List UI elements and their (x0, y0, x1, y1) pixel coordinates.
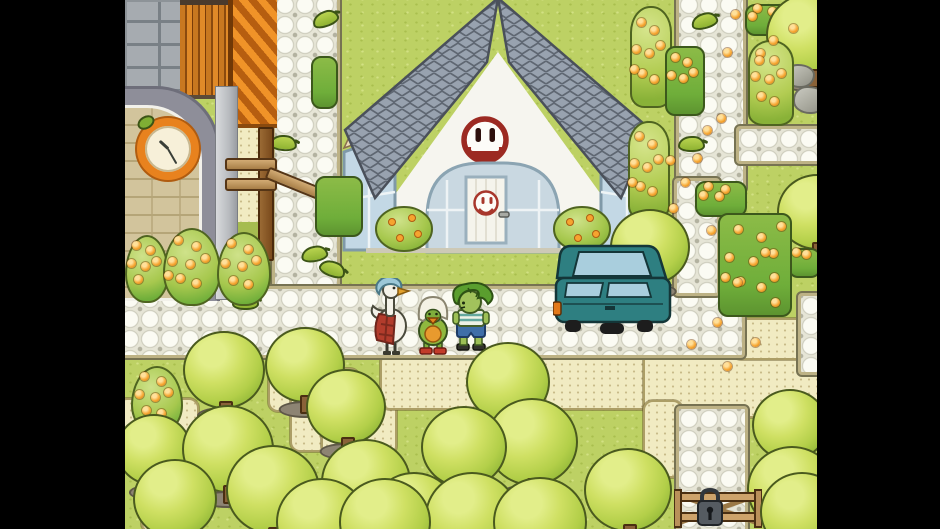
wooden-gate[interactable] (674, 486, 762, 529)
tree (133, 459, 217, 529)
flower (638, 69, 647, 78)
car[interactable] (553, 238, 675, 334)
flower (648, 187, 657, 196)
flower (789, 24, 798, 33)
car-side-window-left (565, 283, 603, 297)
flower (252, 256, 261, 265)
flower (703, 126, 712, 135)
flower (628, 178, 637, 187)
flower (765, 75, 774, 84)
flower (650, 75, 659, 84)
flower (132, 241, 141, 250)
flower (151, 393, 160, 402)
letterbox-right (817, 0, 940, 529)
smiley-emblem (464, 119, 506, 161)
flower (632, 45, 641, 54)
letterbox-left (0, 0, 125, 529)
flower (717, 114, 726, 123)
flower (751, 338, 760, 347)
flower (770, 56, 779, 65)
chick-chest (425, 326, 441, 342)
flower (755, 56, 764, 65)
flower (757, 92, 766, 101)
flower (725, 253, 734, 262)
flower (713, 318, 722, 327)
foundation-bush-left (376, 207, 432, 251)
flower (648, 140, 657, 149)
flower (681, 178, 690, 187)
chick-villager[interactable] (412, 291, 454, 357)
chick-shoe (420, 348, 432, 354)
flower (654, 155, 663, 164)
hedge (311, 56, 338, 109)
cobblestone-branch-path (736, 126, 817, 164)
rock (793, 86, 817, 114)
flower (733, 278, 742, 287)
flower (777, 69, 786, 78)
flower (221, 259, 230, 268)
flower (671, 53, 680, 62)
front-door[interactable] (466, 177, 509, 243)
car-rear-window (573, 252, 651, 276)
flower (637, 18, 646, 27)
flower (636, 182, 645, 191)
flower (140, 372, 149, 381)
flower (704, 182, 713, 191)
flower (757, 283, 766, 292)
flower (689, 68, 698, 77)
goose-beak (398, 288, 409, 295)
flower (201, 254, 210, 263)
flower (666, 156, 675, 165)
flower (693, 154, 702, 163)
flower (146, 246, 155, 255)
flower (777, 222, 786, 231)
flower (244, 280, 253, 289)
flower (164, 271, 173, 280)
flower (244, 245, 253, 254)
flower (723, 48, 732, 57)
flower (157, 377, 166, 386)
flower (141, 262, 150, 271)
flower (174, 236, 183, 245)
tree (306, 369, 386, 445)
flower (687, 340, 696, 349)
flower (707, 226, 716, 235)
flower (699, 191, 708, 200)
flower (669, 204, 678, 213)
flower (192, 242, 201, 251)
door-smiley-icon (475, 192, 498, 215)
flower (152, 257, 161, 266)
flower (127, 259, 136, 268)
car-wheel (565, 320, 581, 332)
flower (769, 36, 778, 45)
flower (135, 390, 144, 399)
flower (769, 249, 778, 258)
flower (751, 72, 760, 81)
flower (192, 279, 201, 288)
flower (683, 58, 692, 67)
flower (630, 65, 639, 74)
flower (723, 362, 732, 371)
flower (229, 276, 238, 285)
tree (183, 331, 265, 409)
leaf-haired-boy[interactable] (448, 282, 494, 354)
game-screen (0, 0, 940, 529)
flower (731, 10, 740, 19)
chick-shoe (434, 348, 446, 354)
flower (238, 262, 247, 271)
flower (679, 74, 688, 83)
wall-clock (137, 118, 199, 180)
flower (176, 274, 185, 283)
flower (734, 225, 743, 234)
house (338, 0, 658, 260)
door-handle (499, 212, 509, 217)
flower (792, 248, 801, 257)
flower (749, 257, 758, 266)
flower (802, 250, 811, 259)
car-wheel (600, 323, 624, 334)
car-side-window-right (607, 283, 651, 297)
flower (186, 260, 195, 269)
hedge (315, 176, 363, 237)
flower (134, 275, 143, 284)
flower (164, 388, 173, 397)
flower (757, 233, 766, 242)
game-viewport[interactable] (125, 0, 817, 529)
car-tail-light (553, 302, 561, 315)
car-handle (605, 306, 615, 310)
flower (770, 97, 779, 106)
flower (630, 159, 639, 168)
flower (771, 298, 780, 307)
tree (584, 448, 672, 529)
flower (748, 12, 757, 21)
flower (650, 26, 659, 35)
orange-slat-wall (180, 0, 230, 99)
flower (635, 132, 644, 141)
clock-minute-hand (167, 149, 177, 165)
flower (168, 257, 177, 266)
fallen-leaf (678, 136, 705, 152)
flower (656, 41, 665, 50)
flower (667, 71, 676, 80)
flower (761, 248, 770, 257)
cobblestone-edge-path (798, 293, 817, 375)
gate-post (674, 490, 681, 527)
tree (493, 477, 587, 529)
flower (645, 49, 654, 58)
flower (715, 192, 724, 201)
flower (643, 163, 652, 172)
flower (721, 273, 730, 282)
goose-villager[interactable] (367, 278, 413, 358)
flower (227, 239, 236, 248)
flower (770, 273, 779, 282)
car-wheel (637, 320, 653, 332)
